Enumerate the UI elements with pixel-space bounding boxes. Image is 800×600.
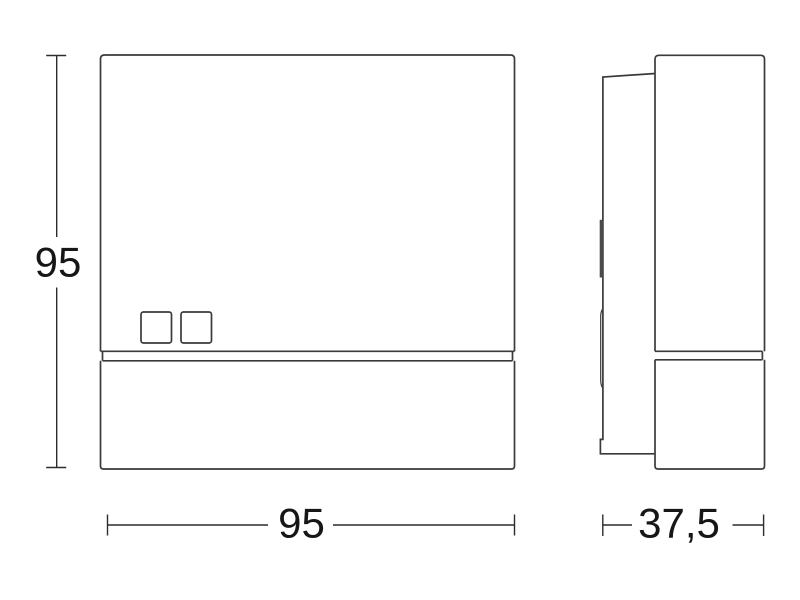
svg-text:95: 95 [278, 500, 325, 547]
svg-text:95: 95 [35, 239, 82, 286]
svg-text:37,5: 37,5 [638, 500, 720, 547]
